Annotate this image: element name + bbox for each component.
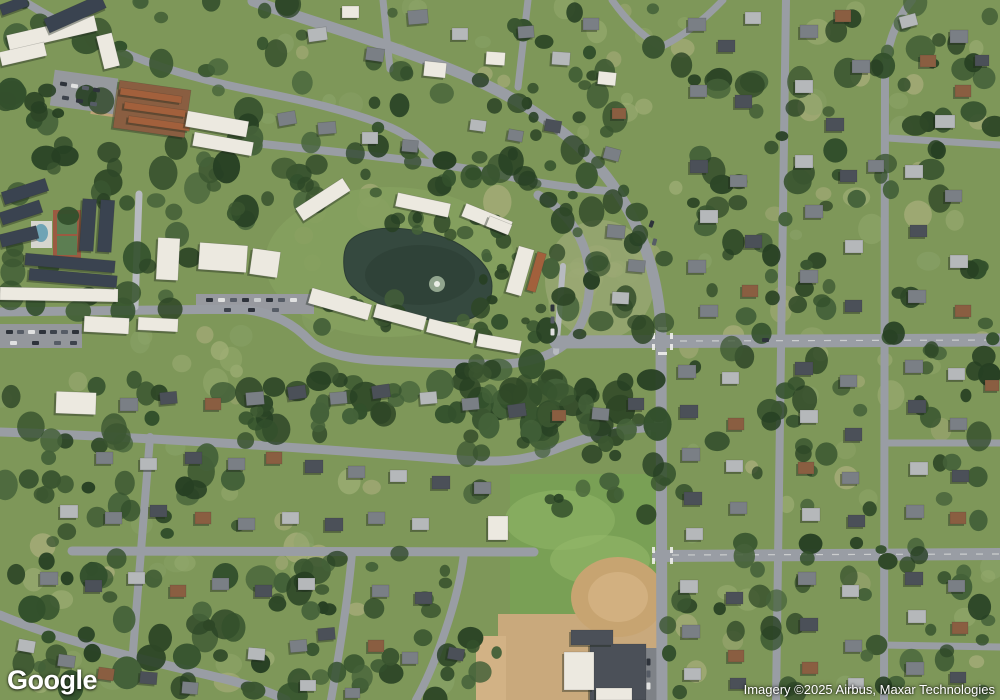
house-rooftop — [462, 397, 480, 410]
house-rooftop — [722, 372, 739, 384]
apartment-building — [56, 391, 97, 414]
house-rooftop — [726, 460, 743, 472]
apartment-building — [156, 237, 180, 280]
house-rooftop — [140, 458, 157, 470]
house-rooftop — [802, 662, 818, 674]
house-rooftop — [730, 175, 747, 187]
house-rooftop — [730, 502, 747, 514]
apartment-building — [249, 248, 280, 278]
house-rooftop — [795, 80, 813, 93]
house-rooftop — [728, 418, 744, 430]
apartment-building — [342, 6, 359, 18]
parked-car — [72, 330, 79, 334]
parked-car — [762, 338, 769, 342]
parked-car — [10, 341, 17, 345]
house-rooftop — [840, 375, 857, 387]
house-rooftop — [835, 10, 851, 22]
house-rooftop — [688, 18, 706, 31]
house-rooftop — [348, 466, 365, 478]
parked-car — [50, 330, 57, 334]
house-rooftop — [345, 688, 360, 698]
house-rooftop — [612, 108, 626, 119]
house-rooftop — [800, 270, 818, 283]
apartment-building — [486, 51, 506, 65]
house-rooftop — [544, 119, 562, 134]
house-rooftop — [948, 580, 965, 592]
house-rooftop — [742, 285, 758, 297]
house-rooftop — [842, 585, 859, 597]
house-rooftop — [948, 368, 965, 380]
house-rooftop — [212, 578, 229, 590]
parked-car — [647, 659, 651, 666]
house-rooftop — [728, 650, 744, 662]
house-rooftop — [290, 639, 308, 652]
house-rooftop — [300, 680, 316, 691]
house-rooftop — [718, 40, 735, 52]
parked-car — [551, 305, 555, 312]
house-rooftop — [910, 462, 928, 475]
house-rooftop — [160, 391, 178, 404]
imagery-attribution: Imagery ©2025 Airbus, Maxar Technologies — [744, 682, 995, 697]
house-rooftop — [745, 12, 761, 24]
house-rooftop — [245, 391, 264, 406]
house-rooftop — [507, 403, 527, 418]
house-rooftop — [845, 428, 862, 441]
house-rooftop — [678, 365, 696, 378]
house-rooftop — [238, 518, 255, 530]
house-rooftop — [432, 476, 450, 489]
house-rooftop — [140, 671, 158, 684]
parked-car — [266, 298, 273, 302]
parked-car — [290, 298, 297, 302]
parked-car — [254, 298, 261, 302]
house-rooftop — [680, 580, 698, 593]
house-rooftop — [690, 85, 707, 97]
house-rooftop — [845, 240, 863, 253]
pond-fountain — [434, 281, 440, 287]
house-rooftop — [852, 60, 870, 73]
house-rooftop — [474, 482, 491, 494]
house-rooftop — [407, 9, 428, 25]
house-rooftop — [628, 398, 644, 410]
house-rooftop — [686, 528, 703, 540]
house-rooftop — [950, 512, 966, 524]
house-rooftop — [277, 111, 297, 127]
house-rooftop — [447, 647, 465, 662]
house-rooftop — [798, 462, 814, 474]
house-rooftop — [298, 578, 315, 590]
parked-car — [278, 298, 285, 302]
house-rooftop — [228, 458, 245, 470]
house-rooftop — [985, 380, 999, 391]
house-rooftop — [305, 460, 323, 473]
house-rooftop — [128, 572, 145, 584]
house-rooftop — [402, 652, 418, 664]
house-rooftop — [950, 255, 968, 268]
house-rooftop — [182, 681, 199, 694]
house-rooftop — [371, 384, 391, 399]
house-rooftop — [318, 121, 337, 135]
house-rooftop — [402, 139, 419, 152]
house-rooftop — [950, 418, 967, 430]
house-rooftop — [85, 580, 102, 592]
house-rooftop — [745, 235, 762, 248]
house-rooftop — [452, 28, 468, 40]
house-rooftop — [362, 132, 378, 144]
parked-car — [39, 330, 46, 334]
house-rooftop — [910, 225, 927, 237]
house-rooftop — [798, 572, 816, 585]
house-rooftop — [255, 585, 272, 597]
apartment-building — [564, 652, 594, 690]
satellite-imagery — [0, 0, 1000, 700]
house-rooftop — [845, 640, 862, 652]
pond-deep-water — [365, 245, 475, 305]
google-logo-text: Google — [7, 665, 97, 695]
house-rooftop — [552, 410, 566, 421]
parked-car — [551, 329, 555, 336]
house-rooftop — [688, 260, 706, 273]
house-rooftop — [840, 170, 857, 182]
house-rooftop — [842, 472, 859, 484]
google-logo[interactable]: Google — [7, 665, 97, 696]
house-rooftop — [60, 505, 78, 518]
house-rooftop — [266, 452, 282, 464]
house-rooftop — [906, 662, 924, 675]
apartment-building — [0, 287, 118, 302]
parked-car — [230, 298, 237, 302]
apartment-building — [84, 316, 130, 334]
house-rooftop — [390, 470, 407, 482]
house-rooftop — [800, 618, 818, 631]
house-rooftop — [826, 118, 844, 131]
parked-car — [28, 330, 35, 334]
house-rooftop — [905, 360, 923, 373]
house-rooftop — [802, 508, 820, 521]
house-rooftop — [606, 224, 625, 239]
house-rooftop — [40, 572, 58, 585]
parked-car — [6, 330, 13, 334]
apartment-building — [423, 61, 446, 78]
parked-car — [647, 671, 651, 678]
house-rooftop — [920, 55, 936, 67]
house-rooftop — [415, 592, 432, 604]
house-rooftop — [906, 505, 924, 518]
house-rooftop — [507, 129, 524, 142]
parked-car — [17, 330, 24, 334]
house-rooftop — [248, 647, 266, 660]
house-rooftop — [97, 667, 115, 681]
house-rooftop — [592, 407, 610, 420]
parked-car — [551, 317, 555, 324]
house-rooftop — [17, 639, 36, 654]
house-rooftop — [518, 25, 535, 38]
parked-car — [242, 298, 249, 302]
tennis-court-surface-south — [57, 236, 77, 255]
house-rooftop — [420, 391, 438, 404]
house-rooftop — [195, 512, 211, 524]
house-rooftop — [955, 85, 971, 97]
house-rooftop — [680, 405, 698, 418]
house-rooftop — [700, 305, 718, 317]
house-rooftop — [950, 30, 968, 43]
apartment-building — [198, 242, 248, 272]
house-rooftop — [120, 398, 138, 411]
house-rooftop — [800, 410, 818, 423]
parked-car — [248, 308, 255, 312]
parked-car — [272, 308, 279, 312]
map-viewport[interactable]: Google Imagery ©2025 Airbus, Maxar Techn… — [0, 0, 1000, 700]
house-rooftop — [952, 470, 969, 482]
house-rooftop — [170, 585, 186, 597]
parked-car — [206, 298, 213, 302]
house-rooftop — [372, 585, 389, 597]
house-rooftop — [868, 160, 884, 172]
house-rooftop — [583, 18, 599, 30]
parked-car — [32, 341, 39, 345]
house-rooftop — [975, 55, 989, 66]
house-rooftop — [682, 448, 700, 461]
parked-car — [647, 683, 651, 690]
house-rooftop — [935, 115, 955, 128]
parked-car — [61, 330, 68, 334]
parked-car — [54, 341, 61, 345]
house-rooftop — [185, 452, 202, 464]
house-rooftop — [795, 362, 813, 375]
house-rooftop — [282, 512, 299, 524]
house-rooftop — [726, 592, 743, 604]
house-rooftop — [96, 452, 113, 464]
house-rooftop — [908, 290, 926, 303]
house-rooftop — [628, 259, 646, 272]
house-rooftop — [318, 627, 336, 640]
parked-car — [224, 308, 231, 312]
house-rooftop — [105, 512, 122, 524]
house-rooftop — [945, 190, 962, 202]
baseball-infield — [588, 572, 648, 622]
house-rooftop — [684, 492, 702, 505]
house-rooftop — [800, 25, 818, 38]
house-rooftop — [469, 119, 486, 132]
house-rooftop — [287, 385, 307, 400]
house-rooftop — [908, 610, 926, 623]
house-rooftop — [848, 515, 865, 527]
house-rooftop — [905, 165, 923, 178]
apartment-building — [488, 516, 508, 540]
house-rooftop — [700, 210, 718, 223]
house-rooftop — [952, 622, 968, 634]
house-rooftop — [325, 518, 343, 531]
house-rooftop — [330, 391, 348, 404]
house-rooftop — [368, 640, 384, 652]
house-rooftop — [805, 205, 823, 218]
house-rooftop — [905, 572, 923, 585]
house-rooftop — [795, 155, 813, 168]
house-rooftop — [845, 300, 862, 312]
house-rooftop — [368, 512, 385, 524]
parked-car — [70, 341, 77, 345]
house-rooftop — [150, 505, 167, 517]
house-rooftop — [684, 668, 701, 680]
apartment-building — [138, 317, 179, 332]
house-rooftop — [307, 27, 328, 43]
house-rooftop — [412, 518, 429, 530]
parked-car — [218, 298, 225, 302]
house-rooftop — [612, 292, 630, 305]
house-rooftop — [955, 305, 971, 317]
house-rooftop — [682, 625, 700, 638]
house-rooftop — [571, 630, 613, 645]
house-rooftop — [735, 95, 752, 108]
house-rooftop — [690, 160, 708, 173]
apartment-building — [597, 71, 616, 86]
house-rooftop — [552, 51, 571, 65]
house-rooftop — [908, 400, 926, 413]
apartment-building — [596, 688, 632, 700]
house-rooftop — [205, 398, 221, 410]
house-rooftop — [365, 47, 385, 62]
